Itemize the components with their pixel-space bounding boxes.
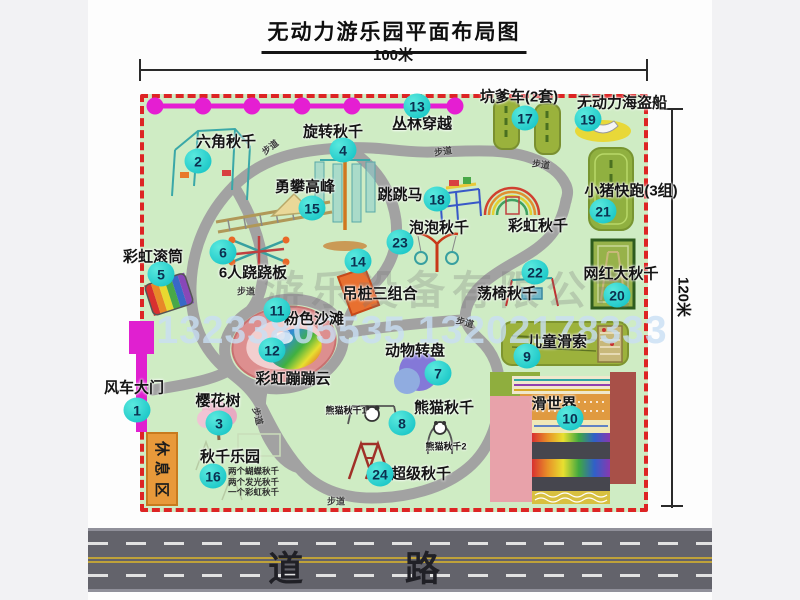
attraction-label-2: 六角秋千	[196, 131, 256, 152]
attraction-badge-19: 19	[575, 107, 602, 132]
attraction-badge-8: 8	[389, 411, 416, 436]
path-label-1: 步道	[433, 143, 453, 158]
attraction-label-3: 樱花树	[195, 390, 240, 411]
attraction-badge-23: 23	[387, 230, 414, 255]
attraction-label-14: 吊桩三组合	[342, 283, 417, 304]
attraction-label-6: 6人跷跷板	[219, 262, 287, 283]
attraction-badge-21: 21	[590, 199, 617, 224]
rest-area-char-2: 区	[154, 482, 169, 497]
attraction-badge-17: 17	[512, 106, 539, 131]
width-dimension-label: 100米	[373, 44, 413, 65]
attraction-badge-22: 22	[522, 260, 549, 285]
attraction-badge-24: 24	[367, 462, 394, 487]
screenshot-root: 无动力游乐园平面布局图 100米 120米	[0, 0, 800, 600]
attraction-badge-11: 11	[264, 298, 291, 323]
road: 道 路	[88, 528, 712, 592]
attraction-badge-5: 5	[148, 262, 175, 287]
height-dimension-line	[671, 109, 673, 508]
attraction-badge-3: 3	[206, 411, 233, 436]
road-label: 道 路	[65, 541, 689, 592]
attraction-badge-9: 9	[514, 344, 541, 369]
attraction-label-8: 熊猫秋千	[414, 397, 474, 418]
attraction-badge-1: 1	[124, 398, 151, 423]
attraction-badge-14: 14	[345, 249, 372, 274]
attraction-badge-16: 16	[200, 464, 227, 489]
swing-park-note-2: 一个彩虹秋千	[228, 487, 279, 498]
attraction-badge-18: 18	[424, 187, 451, 212]
attraction-badge-6: 6	[210, 240, 237, 265]
height-dimension-tick-bottom	[661, 505, 683, 507]
attraction-label-11: 粉色沙滩	[284, 308, 344, 329]
swing-park-note-0: 两个蝴蝶秋千	[228, 466, 279, 477]
extra-label-2: 熊猫秋千2	[425, 440, 466, 453]
extra-label-0: 彩虹秋千	[508, 215, 568, 236]
attraction-label-24: 超级秋千	[391, 463, 451, 484]
attraction-label-1: 风车大门	[104, 377, 164, 398]
width-dimension-tick-left	[139, 59, 141, 81]
attraction-badge-13: 13	[404, 94, 431, 119]
rest-area-char-0: 休	[154, 441, 169, 456]
height-dimension-label: 120米	[674, 277, 695, 317]
width-dimension-line	[140, 69, 648, 71]
attraction-label-15: 勇攀高峰	[275, 176, 335, 197]
attraction-badge-15: 15	[299, 196, 326, 221]
rest-area: 休息区	[146, 432, 178, 506]
rest-area-char-1: 息	[154, 461, 169, 476]
attraction-label-18: 跳跳马	[377, 184, 422, 205]
attraction-badge-7: 7	[425, 361, 452, 386]
attraction-badge-10: 10	[557, 406, 584, 431]
attraction-label-21: 小猪快跑(3组)	[584, 180, 677, 201]
extra-label-1: 熊猫秋千1	[325, 404, 366, 417]
attraction-label-23: 泡泡秋千	[409, 217, 469, 238]
attraction-badge-12: 12	[259, 338, 286, 363]
attraction-badge-20: 20	[604, 283, 631, 308]
swing-park-note-1: 两个发光秋千	[228, 477, 279, 488]
path-label-2: 步道	[531, 156, 551, 171]
width-dimension-tick-right	[646, 59, 648, 81]
attraction-label-12: 彩虹蹦蹦云	[255, 368, 330, 389]
attraction-label-7: 动物转盘	[385, 340, 445, 361]
attraction-badge-4: 4	[330, 138, 357, 163]
attraction-label-4: 旋转秋千	[303, 121, 363, 142]
path-label-3: 步道	[237, 285, 255, 298]
path-label-6: 步道	[327, 495, 345, 508]
attraction-label-22: 荡椅秋千	[477, 283, 537, 304]
attraction-badge-2: 2	[185, 149, 212, 174]
attraction-label-17: 坑爹车(2套)	[480, 86, 558, 107]
attraction-label-20: 网红大秋千	[583, 263, 658, 284]
swing-park-notes: 两个蝴蝶秋千两个发光秋千一个彩虹秋千	[228, 466, 279, 498]
